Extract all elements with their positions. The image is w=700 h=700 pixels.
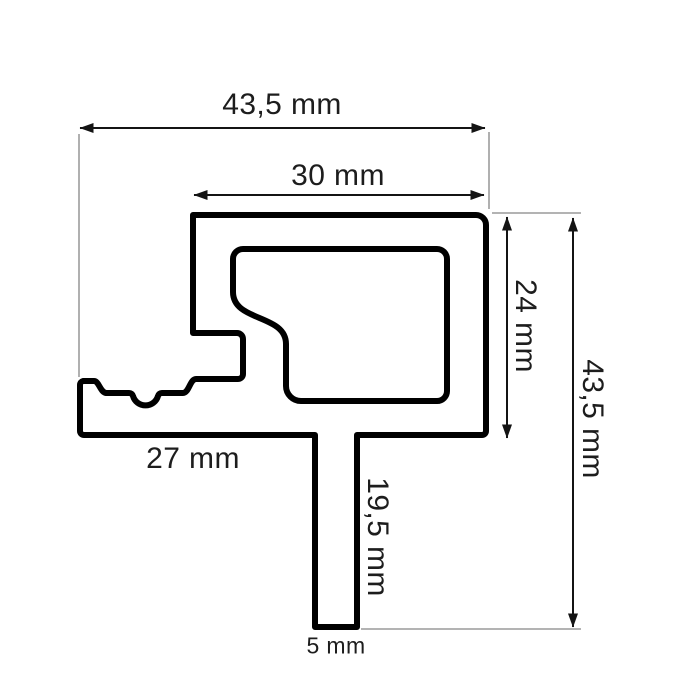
dim-label-body-height: 24 mm [510, 279, 540, 373]
dim-label-stem-height: 19,5 mm [362, 477, 392, 597]
dim-label-stem-width: 5 mm [306, 635, 365, 658]
profile-drawing-canvas [0, 0, 700, 700]
dim-label-overall-width: 43,5 mm [222, 90, 342, 120]
dim-label-base-width: 27 mm [146, 444, 240, 474]
dim-label-overall-height: 43,5 mm [577, 359, 607, 479]
drawing-page: 43,5 mm 30 mm 24 mm 43,5 mm 27 mm 19,5 m… [0, 0, 700, 700]
dim-label-top-width: 30 mm [291, 161, 385, 191]
